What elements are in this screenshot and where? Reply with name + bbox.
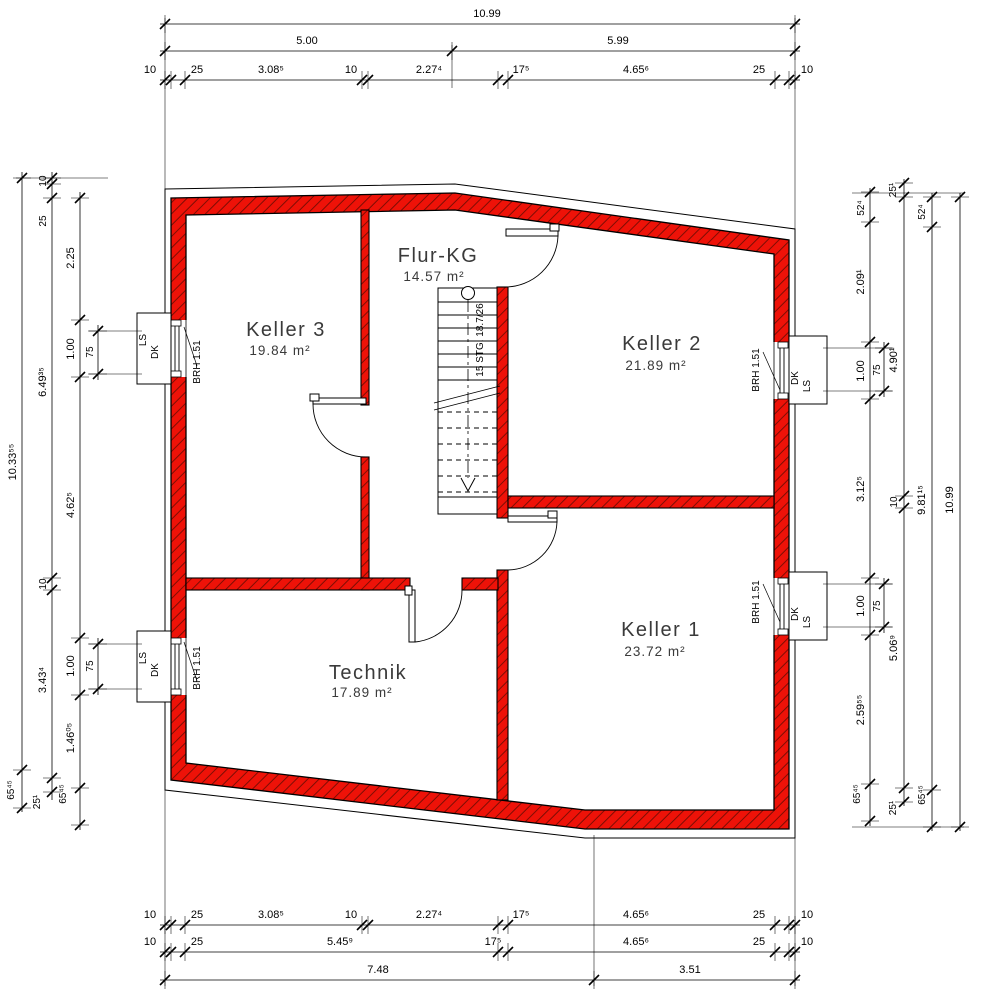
room-name: Keller 2 xyxy=(622,333,702,355)
dim-label: 10 xyxy=(144,909,156,921)
dim-label: 75 xyxy=(85,346,96,358)
room-name: Flur-KG xyxy=(398,245,479,267)
dim-label: 17⁵ xyxy=(485,936,502,948)
door-technik-hinge xyxy=(405,586,412,595)
door-keller2-hinge xyxy=(550,224,559,231)
lightwell-label-dk: DK xyxy=(790,607,801,621)
window-keller3-cap-bottom xyxy=(171,371,181,377)
door-keller1-hinge xyxy=(548,511,557,518)
lightwell-keller1 xyxy=(789,572,827,640)
lightwell-label-dk: DK xyxy=(790,371,801,385)
lightwell-label-dk: DK xyxy=(150,663,161,677)
wall-stair-upper xyxy=(497,287,508,518)
wall-keller2-keller1 xyxy=(508,496,774,508)
dim-label: 5.45⁹ xyxy=(327,936,353,948)
dim-label: 10 xyxy=(345,64,357,76)
dim-label: 3.08⁵ xyxy=(258,64,284,76)
dim-label: 25 xyxy=(753,909,765,921)
dim-label: 75 xyxy=(85,660,96,672)
door-keller1-swing-arc xyxy=(508,522,557,570)
door-technik-leaf xyxy=(409,590,415,642)
dim-label: 10 xyxy=(345,909,357,921)
dim-label: 10 xyxy=(144,64,156,76)
dim-label: 52⁴ xyxy=(917,204,928,219)
dim-label: 75 xyxy=(872,364,883,376)
dim-label: 17⁵ xyxy=(513,64,530,76)
room-area: 14.57 m² xyxy=(403,269,464,284)
dim-label: 52⁴ xyxy=(856,200,867,215)
dim-label: 10.99 xyxy=(473,8,501,20)
dim-label: 10 xyxy=(144,936,156,948)
dim-label: 10.99 xyxy=(944,486,956,514)
wall-technik-right xyxy=(462,578,498,590)
dim-label: 10 xyxy=(801,909,813,921)
dim-label: 65⁴⁵ xyxy=(917,785,928,805)
dim-label: 2.59⁵⁵ xyxy=(855,695,867,726)
dim-label: 25 xyxy=(191,909,203,921)
dim-label: 2.27⁴ xyxy=(416,64,442,76)
wall-technik-left xyxy=(186,578,410,590)
dim-label: 25 xyxy=(38,215,49,227)
dim-label: 1.46⁰⁵ xyxy=(65,723,77,753)
dim-label: 9.81¹⁵ xyxy=(916,485,928,515)
dim-label: 5.00 xyxy=(296,35,317,47)
dim-label: 1.00 xyxy=(65,338,77,359)
window-keller3-cap-top xyxy=(171,320,181,326)
dim-label: 25¹ xyxy=(888,800,899,815)
dim-label: 10.33⁵⁵ xyxy=(7,444,19,481)
lightwell-label-ls: LS xyxy=(802,616,813,629)
dim-label: 25 xyxy=(753,936,765,948)
window-parapet-label: BRH 1.51 xyxy=(192,646,203,690)
dim-label: 4.62⁵ xyxy=(65,492,77,518)
wall-stair-lower xyxy=(497,570,508,800)
dim-label: 25 xyxy=(191,64,203,76)
dim-label: 2.25 xyxy=(65,247,77,268)
door-keller3-leaf xyxy=(313,398,366,404)
window-keller1-opening xyxy=(772,578,790,635)
room-name: Keller 3 xyxy=(246,319,326,341)
dim-label: 3.08⁵ xyxy=(258,909,284,921)
wall-keller3-flur-lower xyxy=(361,457,369,590)
stair-text: 15 STG. 18.7/26 xyxy=(475,303,486,377)
dim-label: 4.65⁶ xyxy=(623,909,649,921)
window-keller1-cap-top xyxy=(778,578,788,584)
dim-label: 1.00 xyxy=(855,595,867,616)
dim-label: 2.27⁴ xyxy=(416,909,442,921)
dim-label: 75 xyxy=(872,600,883,612)
dim-label: 1.00 xyxy=(855,360,867,381)
door-keller3-swing-arc xyxy=(313,404,366,457)
window-keller2-opening xyxy=(772,342,790,399)
door-keller2-swing-arc xyxy=(505,236,558,287)
lightwell-label-dk: DK xyxy=(150,345,161,359)
dim-label: 5.06⁹ xyxy=(888,635,900,661)
dim-label: 25 xyxy=(753,64,765,76)
dim-label: 3.51 xyxy=(679,964,700,976)
lightwell-label-ls: LS xyxy=(138,652,149,665)
window-parapet-label: BRH 1.51 xyxy=(751,348,762,392)
dim-label: 7.48 xyxy=(367,964,388,976)
dim-label: 25 xyxy=(191,936,203,948)
dim-label: 10 xyxy=(889,496,900,508)
lightwell-label-ls: LS xyxy=(802,380,813,393)
window-keller2-cap-bottom xyxy=(778,393,788,399)
door-technik-swing-arc xyxy=(415,590,462,642)
dim-label: 5.99 xyxy=(607,35,628,47)
room-name: Technik xyxy=(329,662,407,684)
dim-label: 10 xyxy=(801,64,813,76)
window-parapet-label: BRH 1.51 xyxy=(192,340,203,384)
room-name: Keller 1 xyxy=(621,619,701,641)
window-technik-cap-top xyxy=(171,638,181,644)
dim-label: 6.49³⁵ xyxy=(37,367,49,397)
dim-label: 10 xyxy=(38,175,49,187)
dim-label: 17⁵ xyxy=(513,909,530,921)
dim-label: 65⁴⁵ xyxy=(852,784,863,804)
dim-label: 4.65⁶ xyxy=(623,936,649,948)
dim-label: 10 xyxy=(38,578,49,590)
dim-label: 25¹ xyxy=(888,182,899,197)
dim-label: 3.43⁴ xyxy=(37,667,49,693)
dim-label: 4.90¹ xyxy=(888,347,900,372)
wall-keller3-flur-upper xyxy=(361,210,369,405)
room-area: 23.72 m² xyxy=(624,644,685,659)
room-area: 19.84 m² xyxy=(249,343,310,358)
window-technik-cap-bottom xyxy=(171,689,181,695)
dim-label: 3.12⁵ xyxy=(855,476,867,502)
basement-floor-plan: LSDKLSDKDKLSDKLSBRH 1.51BRH 1.51BRH 1.51… xyxy=(0,0,1000,1001)
stair-start-circle xyxy=(462,287,475,300)
door-keller3-hinge xyxy=(310,394,319,401)
floor-plan-page: LSDKLSDKDKLSDKLSBRH 1.51BRH 1.51BRH 1.51… xyxy=(0,0,1000,1001)
dim-label: 10 xyxy=(801,936,813,948)
lightwell-label-ls: LS xyxy=(138,334,149,347)
window-keller1-cap-bottom xyxy=(778,629,788,635)
dim-label: 65⁴⁵ xyxy=(6,780,17,800)
window-parapet-label: BRH 1.51 xyxy=(751,580,762,624)
dim-label: 2.09¹ xyxy=(855,269,867,294)
dim-label: 1.00 xyxy=(65,655,77,676)
lightwell-keller2 xyxy=(789,336,827,404)
room-area: 17.89 m² xyxy=(331,685,392,700)
dim-label: 25¹ xyxy=(32,794,43,809)
window-keller2-cap-top xyxy=(778,342,788,348)
dim-label: 4.65⁶ xyxy=(623,64,649,76)
dim-label: 65⁴⁵ xyxy=(58,784,69,804)
room-area: 21.89 m² xyxy=(625,358,686,373)
